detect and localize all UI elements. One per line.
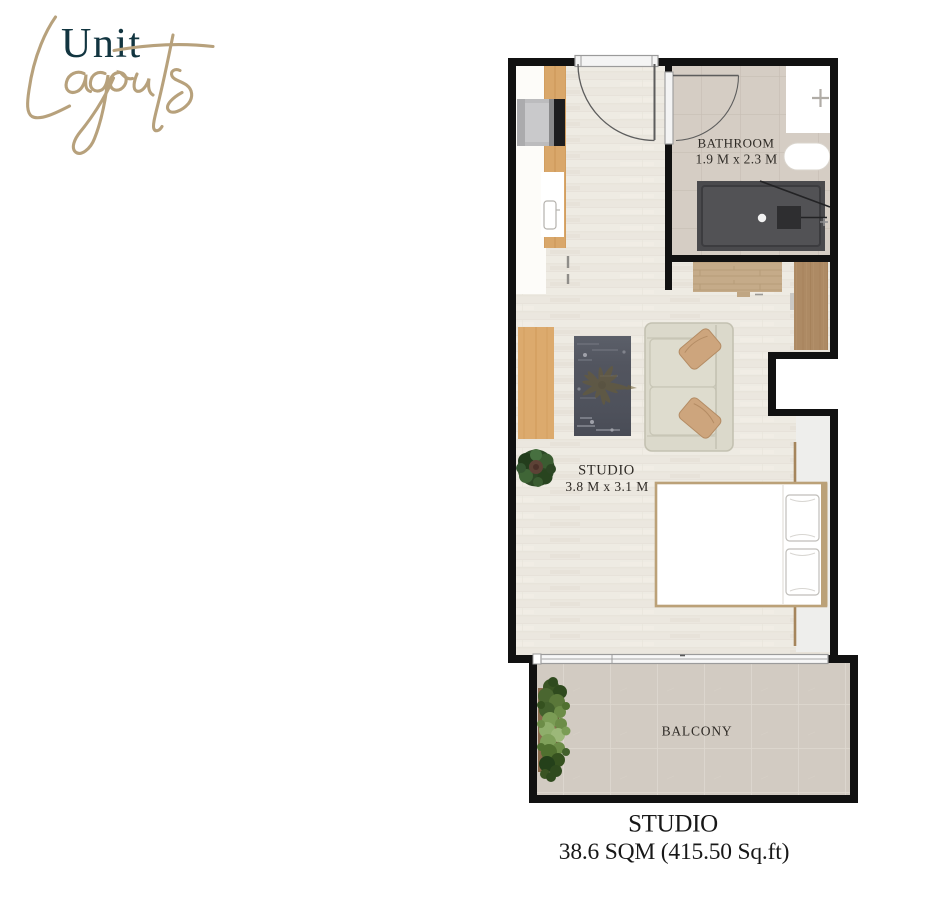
svg-text:1.9 M x 2.3 M: 1.9 M x 2.3 M: [696, 152, 778, 167]
svg-text:STUDIO: STUDIO: [628, 811, 718, 838]
svg-text:BATHROOM: BATHROOM: [698, 136, 775, 151]
svg-text:3.8 M x 3.1 M: 3.8 M x 3.1 M: [565, 479, 648, 494]
svg-text:Unit: Unit: [61, 21, 142, 67]
svg-text:STUDIO: STUDIO: [578, 463, 635, 479]
svg-text:BALCONY: BALCONY: [662, 724, 733, 739]
svg-text:38.6 SQM (415.50 Sq.ft): 38.6 SQM (415.50 Sq.ft): [559, 839, 789, 865]
